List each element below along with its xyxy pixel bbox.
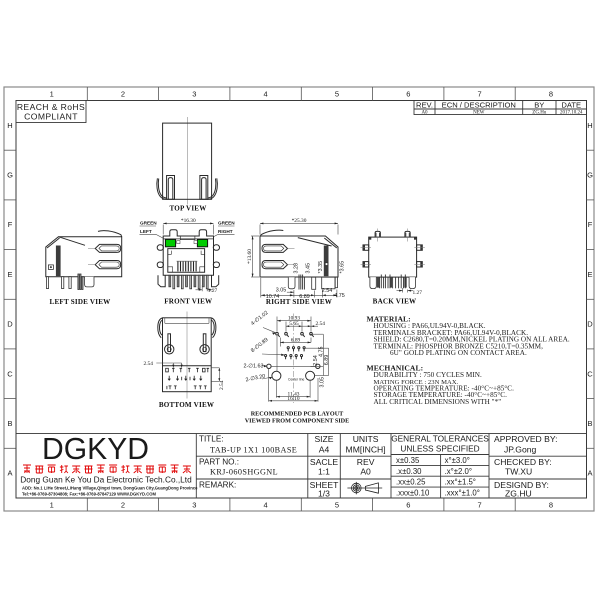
svg-text:H: H — [7, 121, 12, 130]
svg-text:C: C — [7, 369, 13, 378]
svg-text:A4: A4 — [319, 445, 330, 455]
svg-text:CHECKED BY:: CHECKED BY: — [494, 457, 552, 467]
svg-text:TITLE:: TITLE: — [199, 435, 224, 444]
svg-text:SIZE: SIZE — [314, 434, 333, 444]
svg-text:GENERAL TOLERANCES: GENERAL TOLERANCES — [391, 434, 489, 444]
svg-text:*16.30: *16.30 — [181, 218, 196, 224]
svg-text:F: F — [588, 220, 593, 229]
svg-text:2017.10.24: 2017.10.24 — [560, 110, 583, 115]
svg-text:5: 5 — [335, 90, 339, 99]
svg-text:8: 8 — [549, 501, 553, 510]
svg-text:PART NO.:: PART NO.: — [199, 458, 239, 467]
svg-text:REV.: REV. — [416, 100, 433, 109]
svg-text:D: D — [7, 320, 13, 329]
svg-text:8: 8 — [549, 90, 553, 99]
svg-text:A0: A0 — [360, 467, 371, 477]
svg-text:2.54: 2.54 — [316, 321, 326, 327]
svg-text:NEW: NEW — [473, 110, 485, 115]
svg-text:x±0.35: x±0.35 — [396, 456, 420, 465]
svg-text:1: 1 — [50, 501, 54, 510]
svg-text:Tel:+86-0769-87304808; Fax:+86: Tel:+86-0769-87304808; Fax:+86-0769-8784… — [22, 492, 156, 497]
svg-text:REACH & RoHS: REACH & RoHS — [17, 102, 85, 112]
svg-text:3.05: 3.05 — [320, 377, 326, 388]
svg-text:RIGHT: RIGHT — [218, 229, 233, 234]
svg-text:ECN / DESCRIPTION: ECN / DESCRIPTION — [442, 100, 516, 109]
svg-text:*3.35: *3.35 — [318, 261, 324, 274]
svg-text:RIGHT SIDE VIEW: RIGHT SIDE VIEW — [266, 298, 332, 306]
svg-text:APPROVED BY:: APPROVED BY: — [494, 434, 558, 444]
svg-text:D: D — [587, 320, 593, 329]
svg-text:1/3: 1/3 — [318, 489, 330, 499]
svg-text:E: E — [7, 270, 12, 279]
svg-text:5: 5 — [335, 501, 339, 510]
svg-text:2: 2 — [121, 90, 125, 99]
svg-text:2: 2 — [121, 501, 125, 510]
svg-text:VIEWED FROM COMPONENT SIDE: VIEWED FROM COMPONENT SIDE — [245, 418, 350, 425]
svg-text:3.28: 3.28 — [293, 263, 299, 274]
svg-text:6.89: 6.89 — [324, 355, 330, 366]
svg-text:ZG.HU: ZG.HU — [505, 489, 532, 499]
svg-text:B: B — [587, 419, 592, 428]
svg-text:LEFT: LEFT — [140, 229, 152, 234]
svg-text:ZG.Hu: ZG.Hu — [532, 110, 547, 115]
svg-text:6: 6 — [406, 90, 410, 99]
svg-text:DATE: DATE — [561, 100, 581, 109]
svg-text:E: E — [587, 270, 592, 279]
svg-text:3: 3 — [192, 501, 196, 510]
svg-text:1: 1 — [50, 90, 54, 99]
svg-text:.xxx°±1.0°: .xxx°±1.0° — [445, 488, 480, 497]
svg-text:2.54: 2.54 — [322, 288, 333, 294]
svg-text:BACK VIEW: BACK VIEW — [373, 298, 417, 306]
svg-text:JP.Gong: JP.Gong — [504, 445, 537, 455]
svg-text:A0: A0 — [421, 110, 428, 115]
svg-text:TAB-UP 1X1 100BASE: TAB-UP 1X1 100BASE — [210, 446, 297, 455]
svg-text:REV: REV — [357, 457, 375, 467]
svg-text:BOTTOM VIEW: BOTTOM VIEW — [159, 401, 214, 409]
svg-text:6U" GOLD PLATING ON CONTACT AR: 6U" GOLD PLATING ON CONTACT AREA. — [390, 349, 527, 357]
svg-text:4: 4 — [264, 501, 268, 510]
svg-text:7: 7 — [478, 90, 482, 99]
svg-text:F: F — [8, 220, 13, 229]
svg-text:*13.60: *13.60 — [247, 249, 253, 264]
svg-text:MM[INCH]: MM[INCH] — [346, 445, 386, 455]
svg-text:6: 6 — [406, 501, 410, 510]
svg-text:.xxx±0.10: .xxx±0.10 — [396, 488, 430, 497]
svg-text:7: 7 — [478, 501, 482, 510]
svg-text:TOP VIEW: TOP VIEW — [169, 205, 206, 213]
svg-text:1.27: 1.27 — [413, 290, 423, 296]
svg-text:RECOMMENDED PCB LAYOUT: RECOMMENDED PCB LAYOUT — [251, 411, 344, 418]
svg-text:C: C — [587, 369, 593, 378]
svg-text:.xx±0.25: .xx±0.25 — [396, 478, 426, 487]
svg-text:4.75: 4.75 — [334, 293, 345, 299]
svg-text:ALL CRITICAL DIMENSIONS WITH ": ALL CRITICAL DIMENSIONS WITH "*" — [374, 398, 502, 406]
svg-text:UNLESS SPECIFIED: UNLESS SPECIFIED — [400, 444, 479, 454]
svg-text:A: A — [7, 469, 12, 478]
svg-text:B: B — [7, 419, 12, 428]
svg-text:6.89: 6.89 — [291, 337, 301, 343]
svg-text:GREEN: GREEN — [140, 221, 157, 226]
svg-text:*25.30: *25.30 — [292, 218, 307, 224]
svg-text:GREEN: GREEN — [218, 221, 235, 226]
svg-text:LEFT SIDE VIEW: LEFT SIDE VIEW — [50, 298, 111, 306]
svg-text:.x±0.30: .x±0.30 — [396, 467, 422, 476]
svg-text:16.10: 16.10 — [287, 396, 299, 402]
svg-text:ADD: No.1 LiHe Street,LiHang V: ADD: No.1 LiHe Street,LiHang Village,Qin… — [22, 485, 198, 490]
svg-text:2.54: 2.54 — [144, 361, 154, 367]
svg-text:DGKYD: DGKYD — [42, 432, 149, 466]
svg-text:KRJ-060SHGGNL: KRJ-060SHGGNL — [210, 468, 278, 477]
svg-text:.xx°±1.5°: .xx°±1.5° — [445, 478, 476, 487]
svg-text:BY: BY — [534, 100, 544, 109]
svg-text:2.54: 2.54 — [219, 380, 225, 390]
svg-text:3.45: 3.45 — [305, 263, 311, 274]
svg-text:3: 3 — [192, 90, 196, 99]
svg-text:1:1: 1:1 — [318, 467, 330, 477]
svg-text:2-∅1.63: 2-∅1.63 — [244, 363, 264, 369]
svg-text:Dong Guan Ke You Da Electronic: Dong Guan Ke You Da Electronic Tech.Co.,… — [20, 474, 192, 484]
svg-text:REMARK:: REMARK: — [199, 481, 236, 490]
svg-text:3.05: 3.05 — [276, 287, 287, 293]
svg-text:COMPLIANT: COMPLIANT — [24, 112, 78, 122]
svg-text:*3.65: *3.65 — [339, 261, 345, 274]
svg-text:.x°±2.0°: .x°±2.0° — [445, 467, 472, 476]
svg-text:1.27: 1.27 — [208, 288, 218, 294]
svg-text:G: G — [587, 171, 593, 180]
svg-text:H: H — [587, 121, 592, 130]
svg-text:G: G — [7, 171, 13, 180]
svg-text:SACLE: SACLE — [310, 457, 338, 467]
svg-text:x°±3.0°: x°±3.0° — [445, 456, 470, 465]
svg-text:FRONT VIEW: FRONT VIEW — [164, 298, 212, 306]
svg-text:Center line: Center line — [288, 378, 305, 382]
svg-text:5.65: 5.65 — [289, 321, 299, 327]
svg-text:TW.XU: TW.XU — [505, 467, 532, 477]
svg-text:UNITS: UNITS — [353, 434, 379, 444]
svg-text:A: A — [587, 469, 592, 478]
svg-text:4: 4 — [264, 90, 268, 99]
